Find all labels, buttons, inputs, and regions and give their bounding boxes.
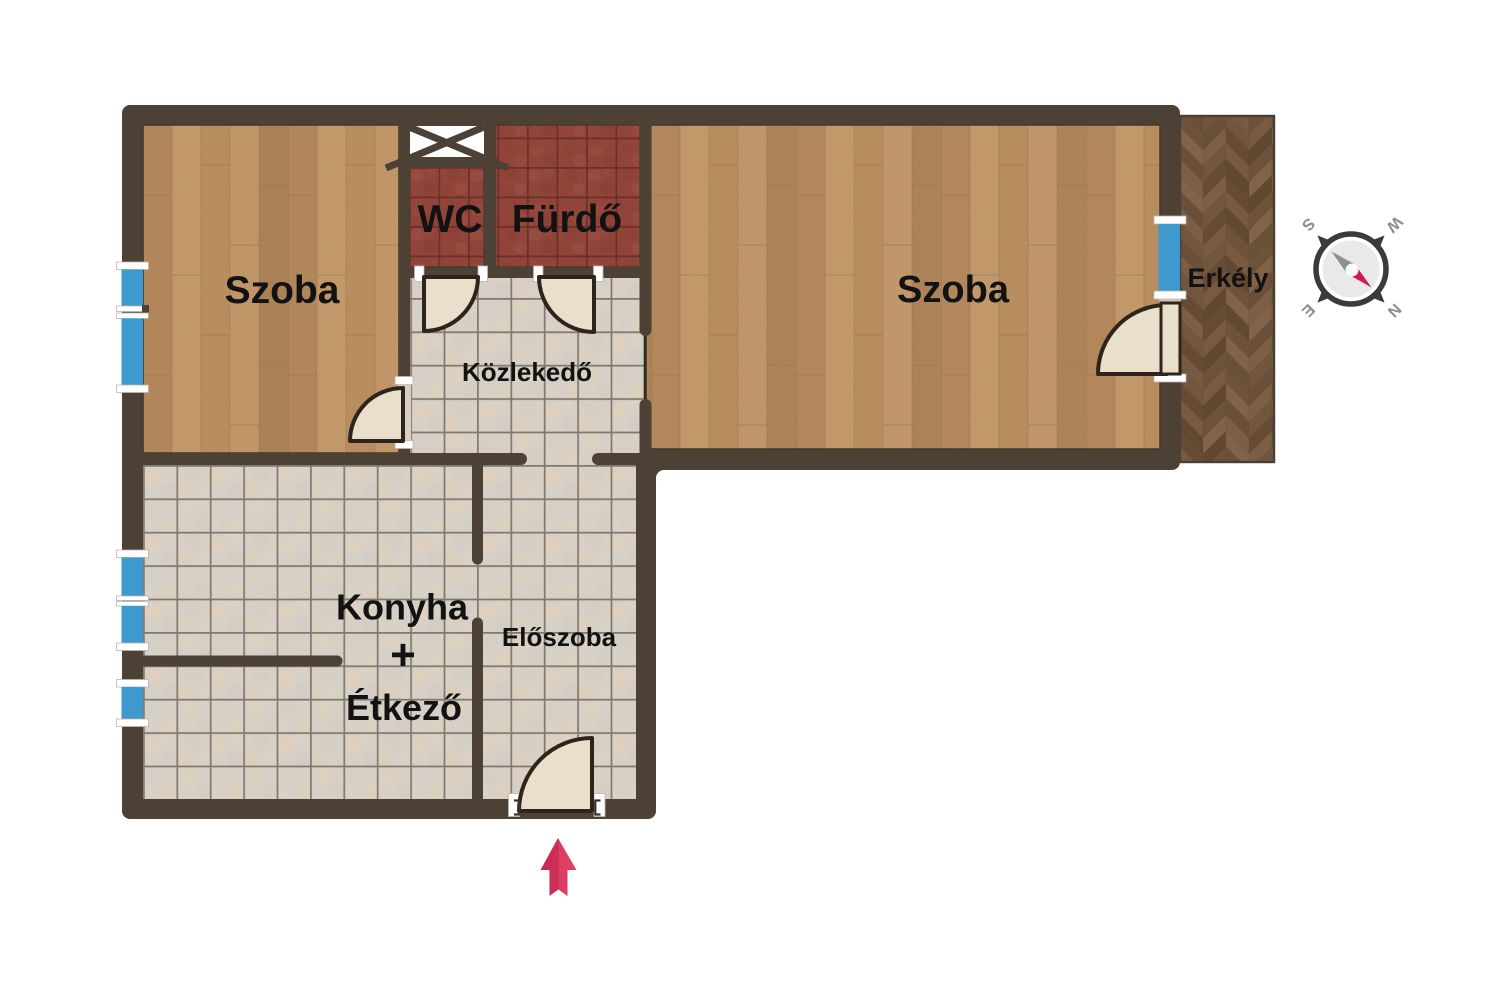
svg-text:Előszoba: Előszoba (502, 622, 617, 652)
svg-text:Erkély: Erkély (1187, 263, 1268, 293)
svg-text:Étkező: Étkező (346, 687, 462, 728)
svg-text:Fürdő: Fürdő (512, 198, 622, 241)
svg-text:WC: WC (418, 198, 483, 241)
svg-text:Szoba: Szoba (225, 269, 340, 312)
svg-text:+: + (390, 631, 416, 680)
svg-text:Közlekedő: Közlekedő (462, 357, 592, 387)
svg-text:Konyha: Konyha (336, 587, 469, 628)
svg-text:Szoba: Szoba (897, 269, 1010, 311)
